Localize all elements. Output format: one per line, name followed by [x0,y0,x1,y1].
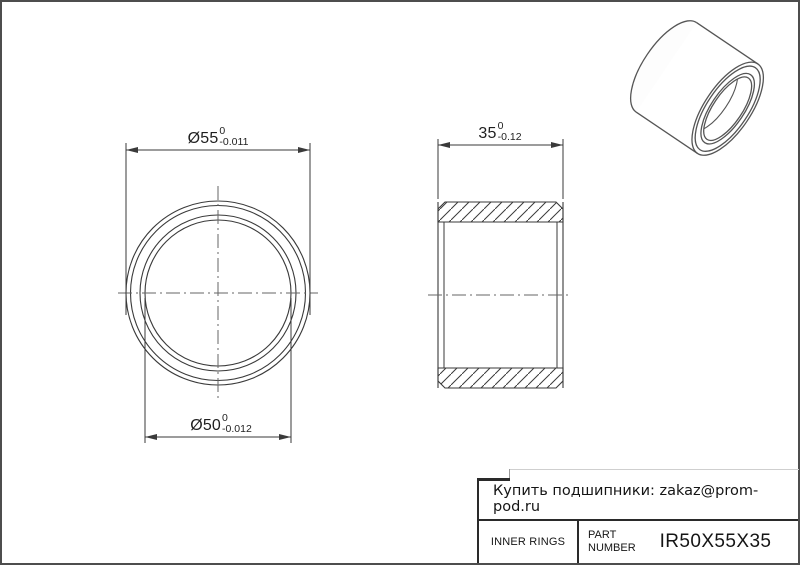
arrowhead-left [438,142,450,148]
tolerance-upper: 0 [219,126,225,137]
drawing-sheet: Ø55 0 -0.011 Ø50 0 -0.012 35 0 -0.12 Куп… [0,0,800,565]
arrowhead-right [298,147,310,153]
section-view [428,202,570,388]
dimension-outer-diameter: Ø55 0 -0.011 [118,126,318,147]
dimension-value: 35 [478,125,496,142]
part-number-value: IR50X55X35 [660,531,772,553]
tolerance-lower: -0.012 [222,424,252,435]
title-block-top-border [509,469,799,470]
dimension-bore-diameter: Ø50 0 -0.012 [121,413,321,434]
dimension-tolerance: 0 -0.012 [222,413,252,434]
contact-text: Купить подшипники: zakaz@prom-pod.ru [493,483,798,515]
dimension-tolerance: 0 -0.12 [498,121,522,142]
title-block-main-row: INNER RINGS PART NUMBER IR50X55X35 [479,521,798,563]
tolerance-lower: -0.011 [219,137,248,148]
tolerance-lower: -0.12 [498,132,522,143]
dimension-value: Ø55 [188,130,219,147]
part-number-label: PART NUMBER [588,529,655,555]
arrowhead-left [145,434,157,440]
arrowhead-right [551,142,563,148]
arrowhead-left [126,147,138,153]
dimension-width: 35 0 -0.12 [400,121,600,142]
category-cell: INNER RINGS [479,521,579,563]
part-number-cell: IR50X55X35 [655,521,798,563]
top-wall-section [438,202,563,222]
title-block-notch [477,478,510,481]
tolerance-upper: 0 [498,121,504,132]
title-block: Купить подшипники: zakaz@prom-pod.ru INN… [477,479,798,563]
isometric-view [617,9,778,167]
part-number-label-cell: PART NUMBER [579,521,655,563]
tolerance-upper: 0 [222,413,228,424]
contact-row: Купить подшипники: zakaz@prom-pod.ru [479,479,798,521]
dimension-tolerance: 0 -0.011 [219,126,248,147]
arrowhead-right [279,434,291,440]
category-label: INNER RINGS [491,536,565,548]
front-view [118,186,318,400]
dimension-value: Ø50 [190,417,221,434]
bottom-wall-section [438,368,563,388]
dim-width-lines [438,139,563,199]
